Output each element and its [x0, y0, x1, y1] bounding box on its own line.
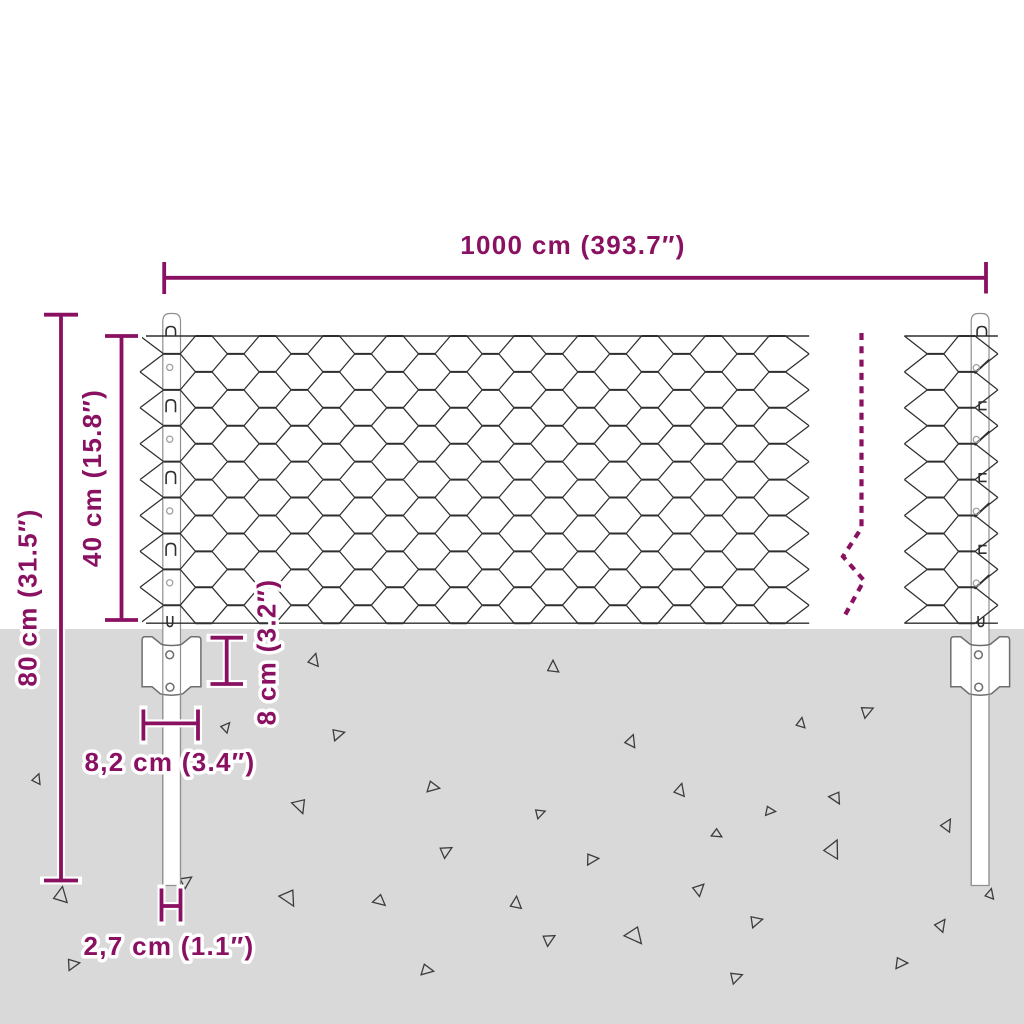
svg-text:80 cm (31.5″): 80 cm (31.5″): [13, 508, 43, 686]
svg-text:8 cm (3.2″): 8 cm (3.2″): [252, 579, 282, 726]
svg-text:2,7 cm (1.1″): 2,7 cm (1.1″): [84, 931, 255, 961]
svg-text:8,2 cm (3.4″): 8,2 cm (3.4″): [85, 747, 256, 777]
svg-text:1000 cm (393.7″): 1000 cm (393.7″): [460, 230, 686, 260]
svg-text:40 cm (15.8″): 40 cm (15.8″): [77, 389, 107, 567]
